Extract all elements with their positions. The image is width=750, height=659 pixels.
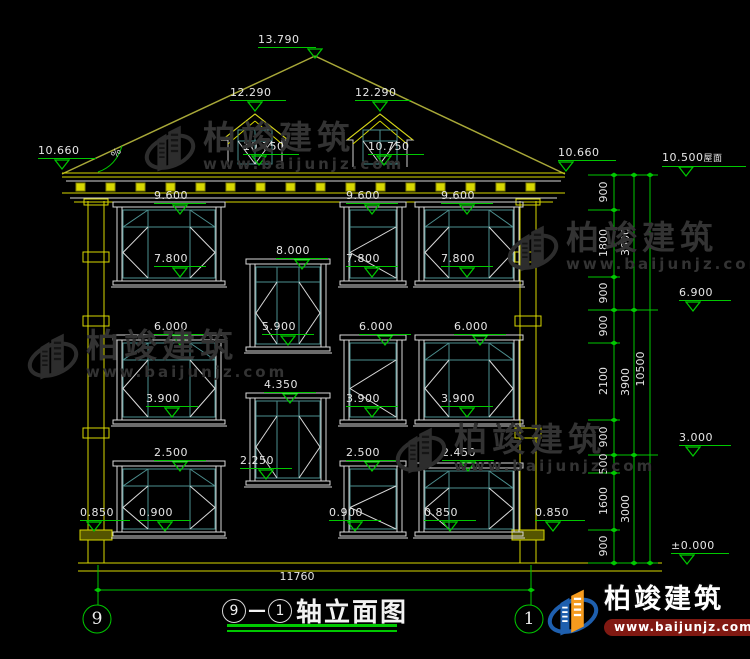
elev-f1-sill-3: 0.850 xyxy=(424,507,476,521)
elevation-triangle-icon xyxy=(172,267,188,278)
elevation-value: 4.350 xyxy=(264,378,298,391)
elev-f2-top-2: 6.000 xyxy=(359,321,411,335)
elev-f2-top-1: 6.000 xyxy=(154,321,206,335)
elevation-value: 10.660 xyxy=(38,144,80,157)
elevation-value: 7.800 xyxy=(346,252,380,265)
elevation-value: ±0.000 xyxy=(671,539,715,552)
elevation-triangle-icon xyxy=(545,521,561,532)
elevation-triangle-icon xyxy=(459,407,475,418)
elevation-triangle-icon xyxy=(282,393,298,404)
elevation-value: 3.000 xyxy=(679,431,713,444)
elev-f3-sill-3: 7.800 xyxy=(441,253,493,267)
elevation-triangle-icon xyxy=(258,469,274,480)
elevation-value: 0.850 xyxy=(535,506,569,519)
elevation-value: 6.000 xyxy=(154,320,188,333)
elev-f3-top-2: 9.600 xyxy=(346,190,398,204)
elevation-triangle-icon xyxy=(251,155,267,166)
elevation-value: 2.500 xyxy=(154,446,188,459)
elevation-triangle-icon xyxy=(364,407,380,418)
elev-eave-l: 10.660 xyxy=(38,145,96,159)
brand-logo-icon xyxy=(546,584,600,646)
elevation-value: 0.900 xyxy=(139,506,173,519)
elev-f2-sill-1: 3.900 xyxy=(146,393,198,407)
overall-width-dim: 11760 xyxy=(257,571,337,583)
elevation-value: 9.600 xyxy=(154,189,188,202)
elev-stair1-top: 8.000 xyxy=(276,245,328,259)
dim-text: 2100 xyxy=(598,359,610,403)
elev-roof: 10.500屋面 xyxy=(662,152,746,167)
elevation-value: 9.600 xyxy=(441,189,475,202)
building-logo-icon xyxy=(546,584,600,642)
elevation-triangle-icon xyxy=(247,101,263,112)
elevation-triangle-icon xyxy=(172,461,188,472)
brand-logo: 柏竣建筑 www.baijunjz.com xyxy=(546,584,750,646)
elevation-value: 7.800 xyxy=(441,252,475,265)
dim-text: 900 xyxy=(598,304,610,348)
dim-text: 1600 xyxy=(598,479,610,523)
dim-text: 1800 xyxy=(598,221,610,265)
elevation-value: 6.900 xyxy=(679,286,713,299)
elev-f3-sill-1: 7.800 xyxy=(154,253,206,267)
title-underline-thick xyxy=(227,624,397,627)
elevation-value: 12.290 xyxy=(230,86,272,99)
elevation-triangle-icon xyxy=(347,521,363,532)
elevation-triangle-icon xyxy=(157,521,173,532)
elevation-value: 5.900 xyxy=(262,320,296,333)
elevation-triangle-icon xyxy=(54,159,70,170)
dim-text: 10500 xyxy=(635,347,647,391)
elevation-triangle-icon xyxy=(364,461,380,472)
elev-f2-sill-2: 3.900 xyxy=(346,393,398,407)
elevation-triangle-icon xyxy=(685,446,701,457)
elev-f1-top-1: 2.500 xyxy=(154,447,206,461)
elevation-value: 9.600 xyxy=(346,189,380,202)
elev-lvl-0: ±0.000 xyxy=(671,540,729,554)
elevation-triangle-icon xyxy=(679,554,695,565)
elev-f1-top-2: 2.500 xyxy=(346,447,398,461)
elev-ridge: 13.790 xyxy=(258,34,316,48)
elevation-triangle-icon xyxy=(678,166,694,177)
elevation-triangle-icon xyxy=(280,335,296,346)
elevation-value: 10.750 xyxy=(243,140,285,153)
title-axis-start-circle: 9 xyxy=(222,599,246,623)
elev-lvl-69: 6.900 xyxy=(679,287,731,301)
elev-stair2-top: 4.350 xyxy=(264,379,316,393)
dim-text: 3600 xyxy=(620,220,632,264)
elevation-value: 7.800 xyxy=(154,252,188,265)
elev-f2-sill-3: 3.900 xyxy=(441,393,493,407)
elevation-value: 10.660 xyxy=(558,146,600,159)
elevation-suffix: 屋面 xyxy=(704,154,723,164)
elev-dormer-sill-l: 10.750 xyxy=(243,141,299,155)
elevation-value: 0.850 xyxy=(80,506,114,519)
elev-dormer-sill-r: 10.750 xyxy=(368,141,424,155)
elev-lvl-30: 3.000 xyxy=(679,432,731,446)
elevation-triangle-icon xyxy=(472,335,488,346)
elev-stair1-sill: 5.900 xyxy=(262,321,314,335)
elev-f3-top-3: 9.600 xyxy=(441,190,493,204)
elevation-triangle-icon xyxy=(294,259,310,270)
elev-f1-sill-1: 0.900 xyxy=(139,507,191,521)
elevation-drawing: 13.79012.29012.29010.75010.75010.66010.6… xyxy=(0,0,750,659)
elev-f1-sill-2: 0.900 xyxy=(329,507,381,521)
elevation-triangle-icon xyxy=(307,48,323,59)
elevation-value: 3.900 xyxy=(146,392,180,405)
elevation-triangle-icon xyxy=(685,301,701,312)
title-axis-end-circle: 1 xyxy=(268,599,292,623)
elevation-value: 6.000 xyxy=(454,320,488,333)
dim-text: 900 xyxy=(598,170,610,214)
elevation-triangle-icon xyxy=(86,521,102,532)
title-underline-thin xyxy=(227,630,397,632)
elevation-triangle-icon xyxy=(364,267,380,278)
elevation-value: 2.500 xyxy=(346,446,380,459)
elevation-triangle-icon xyxy=(558,161,574,172)
elev-eave-r: 10.660 xyxy=(558,147,616,161)
elevation-triangle-icon xyxy=(460,461,476,472)
elevation-triangle-icon xyxy=(364,204,380,215)
elev-stair2-sill: 2.250 xyxy=(240,455,292,469)
elevation-value: 10.750 xyxy=(368,140,410,153)
elevation-triangle-icon xyxy=(459,267,475,278)
elevation-value: 10.500 xyxy=(662,151,704,164)
elevation-underline xyxy=(662,166,746,167)
elevation-triangle-icon xyxy=(442,521,458,532)
elevation-value: 3.900 xyxy=(441,392,475,405)
elev-base-l: 0.850 xyxy=(80,507,130,521)
elevation-triangle-icon xyxy=(377,335,393,346)
elevation-value: 2.450 xyxy=(442,446,476,459)
brand-logo-url: www.baijunjz.com xyxy=(604,619,750,636)
elev-dormer-l: 12.290 xyxy=(230,87,286,101)
elevation-value: 3.900 xyxy=(346,392,380,405)
elev-f3-top-1: 9.600 xyxy=(154,190,206,204)
dim-text: 900 xyxy=(598,524,610,568)
elevation-triangle-icon xyxy=(172,335,188,346)
axis-number-left: 9 xyxy=(83,609,111,629)
elevation-value: 0.850 xyxy=(424,506,458,519)
elevation-value: 2.250 xyxy=(240,454,274,467)
elevation-value: 13.790 xyxy=(258,33,300,46)
dim-text: 3900 xyxy=(620,360,632,404)
elevation-triangle-icon xyxy=(164,407,180,418)
elev-f1-top-3: 2.450 xyxy=(442,447,494,461)
elevation-triangle-icon xyxy=(372,101,388,112)
elev-base-r: 0.850 xyxy=(535,507,585,521)
axis-number-right: 1 xyxy=(515,609,543,629)
elevation-value: 12.290 xyxy=(355,86,397,99)
elev-f3-sill-2: 7.800 xyxy=(346,253,398,267)
elevation-value: 6.000 xyxy=(359,320,393,333)
elevation-value: 0.900 xyxy=(329,506,363,519)
elevation-triangle-icon xyxy=(459,204,475,215)
title-dash: — xyxy=(248,600,266,621)
elevation-triangle-icon xyxy=(376,155,392,166)
brand-logo-name: 柏竣建筑 xyxy=(604,584,750,616)
elev-dormer-r: 12.290 xyxy=(355,87,411,101)
elevation-value: 8.000 xyxy=(276,244,310,257)
dim-text: 3000 xyxy=(620,487,632,531)
elev-f2-top-3: 6.000 xyxy=(454,321,506,335)
elevation-triangle-icon xyxy=(172,204,188,215)
